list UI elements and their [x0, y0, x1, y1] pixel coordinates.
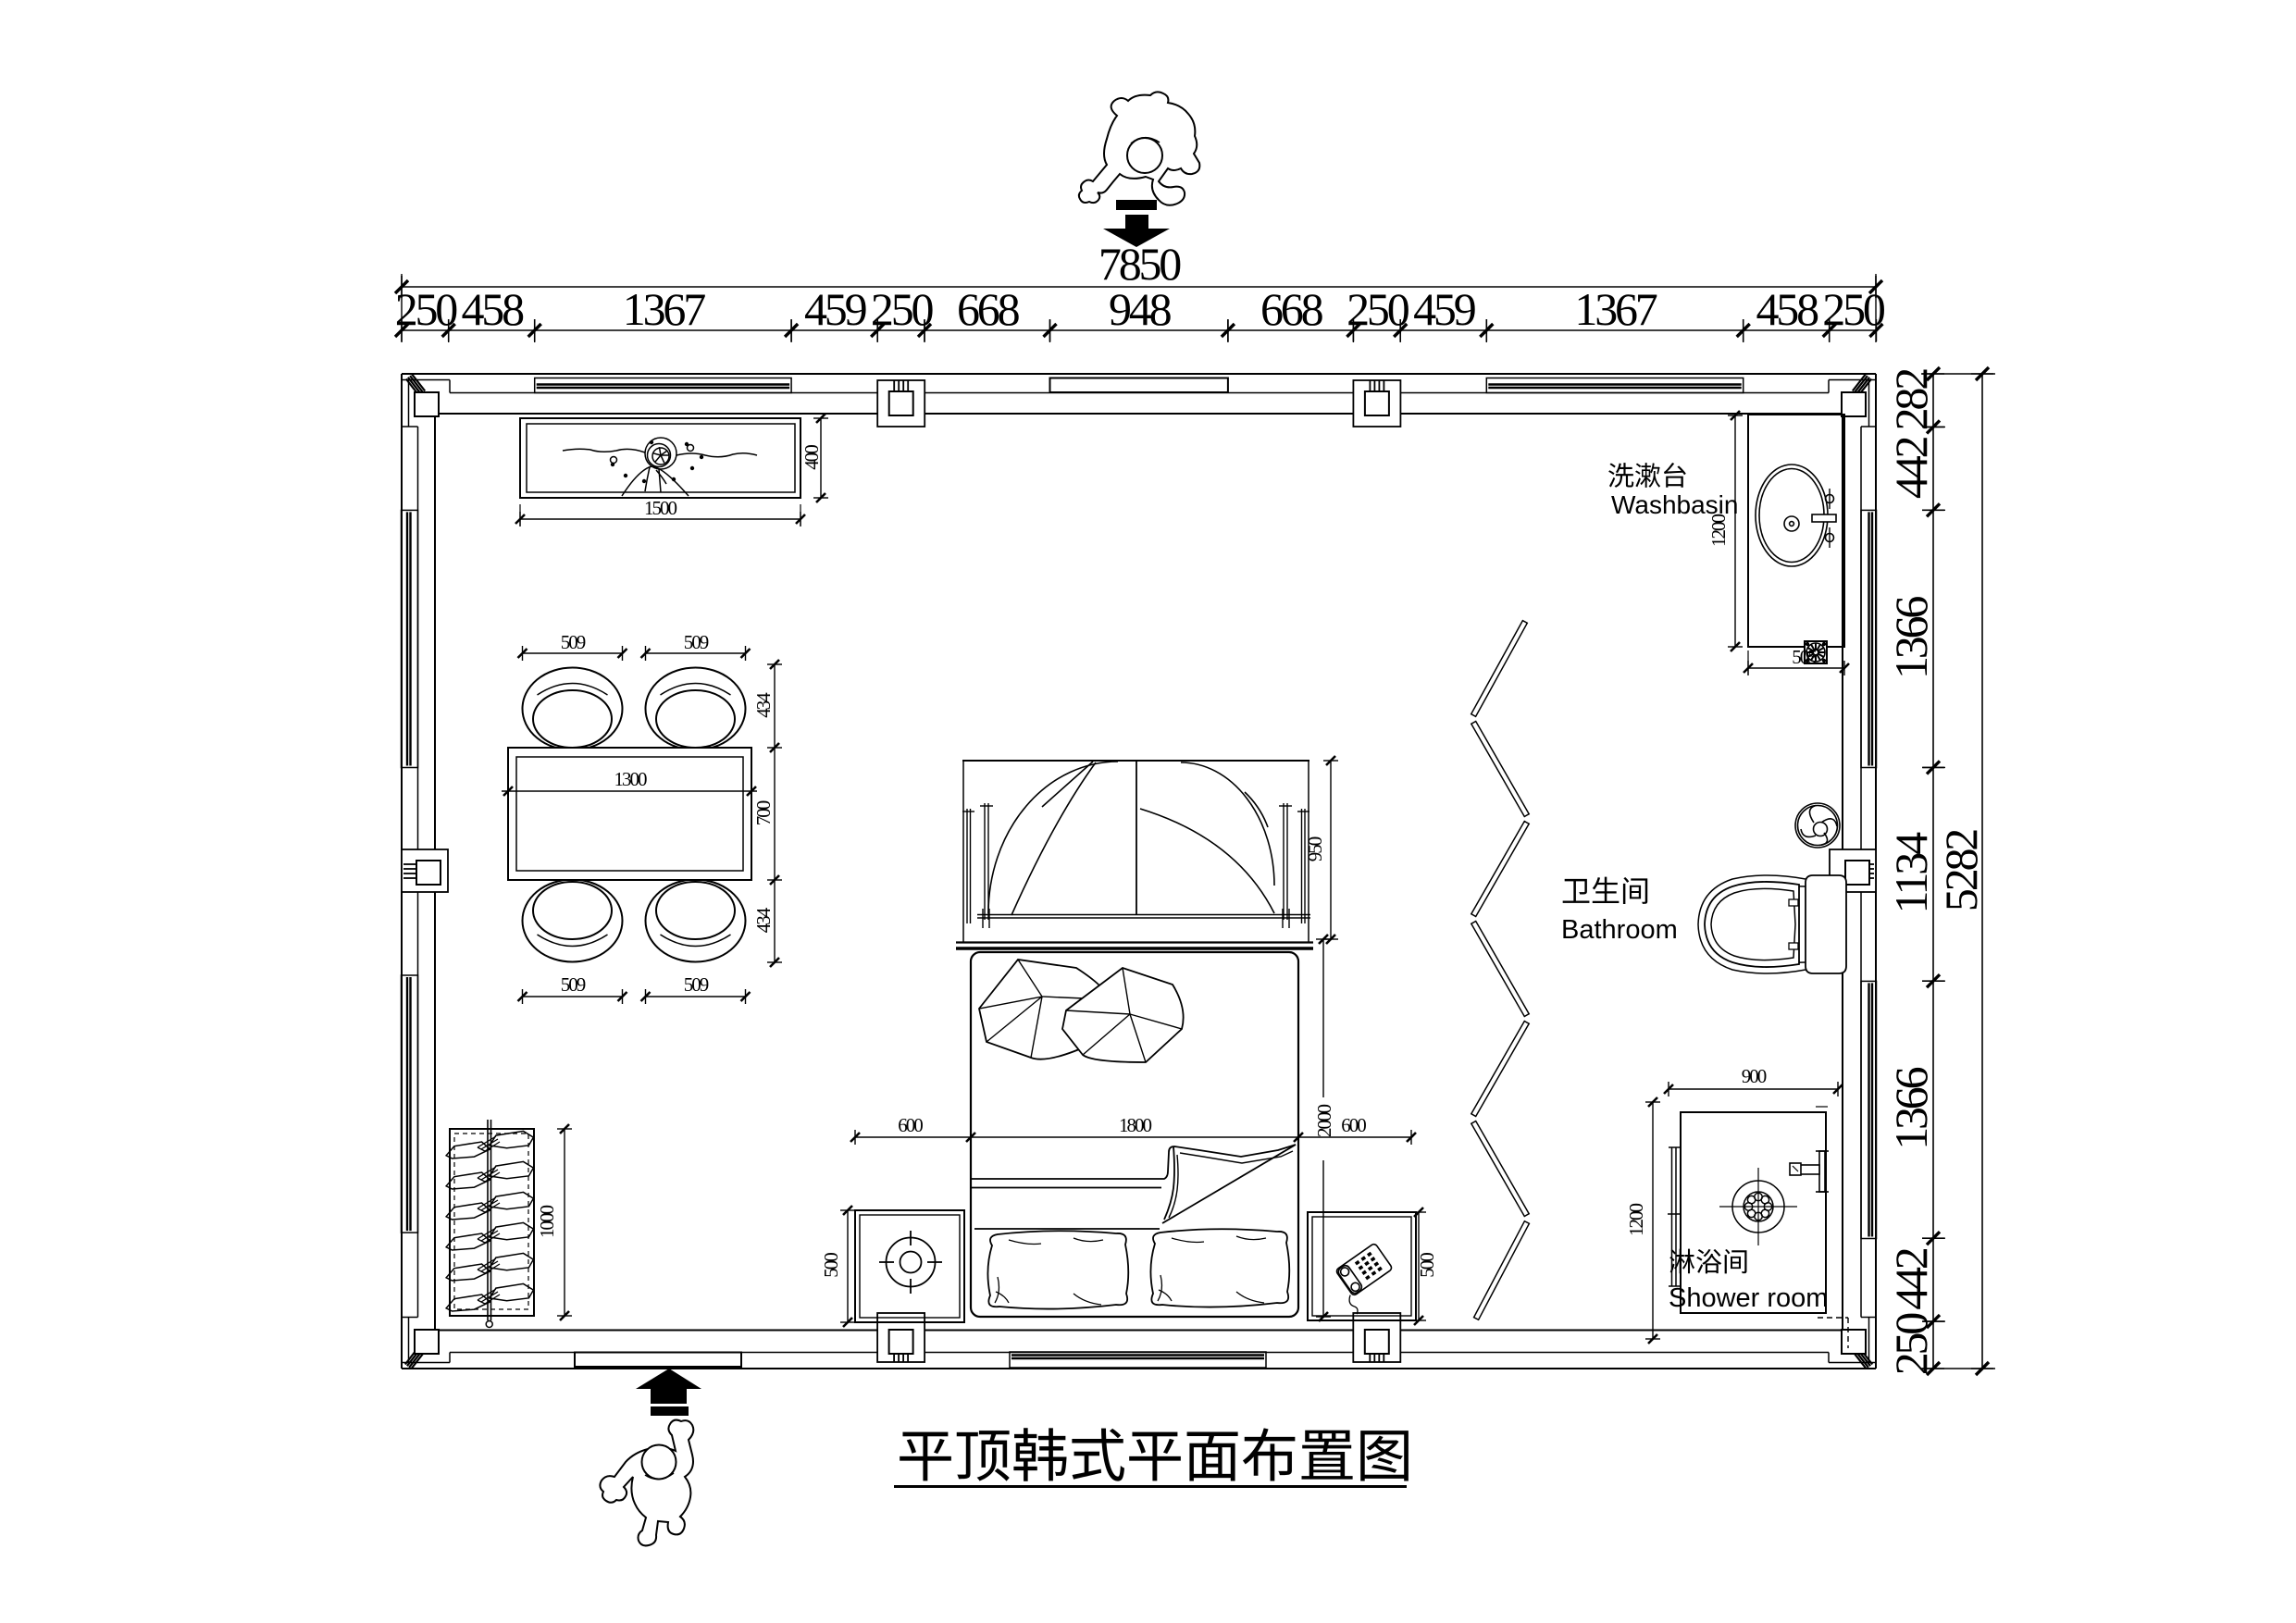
svg-text:509: 509 [561, 973, 586, 996]
svg-text:1500: 1500 [644, 497, 677, 519]
svg-text:7850: 7850 [1098, 238, 1181, 290]
svg-text:600: 600 [1341, 1114, 1366, 1136]
svg-text:458: 458 [461, 283, 524, 335]
svg-text:1800: 1800 [1119, 1114, 1152, 1136]
svg-text:459: 459 [804, 283, 866, 335]
svg-text:459: 459 [1413, 283, 1475, 335]
svg-text:1134: 1134 [1885, 832, 1937, 914]
svg-text:250: 250 [1885, 1313, 1937, 1376]
svg-text:500: 500 [1416, 1253, 1438, 1278]
svg-text:Washbasin: Washbasin [1611, 490, 1738, 519]
svg-text:500: 500 [820, 1253, 842, 1278]
svg-text:1367: 1367 [1574, 283, 1657, 335]
svg-text:250: 250 [1822, 283, 1885, 335]
svg-text:442: 442 [1885, 438, 1937, 500]
svg-text:250: 250 [871, 283, 934, 335]
svg-text:509: 509 [561, 631, 586, 653]
svg-text:458: 458 [1756, 283, 1818, 335]
svg-text:668: 668 [957, 283, 1020, 335]
svg-text:250: 250 [1347, 283, 1409, 335]
svg-text:668: 668 [1260, 283, 1323, 335]
svg-text:1366: 1366 [1885, 597, 1937, 679]
svg-text:400: 400 [800, 445, 823, 470]
svg-text:Bathroom: Bathroom [1561, 915, 1678, 945]
svg-text:282: 282 [1885, 369, 1937, 431]
svg-text:Shower room: Shower room [1669, 1283, 1828, 1313]
svg-text:250: 250 [395, 283, 458, 335]
svg-text:1000: 1000 [536, 1206, 558, 1239]
svg-text:950: 950 [1304, 836, 1326, 861]
svg-text:434: 434 [752, 692, 775, 718]
svg-text:1200: 1200 [1707, 514, 1730, 548]
svg-text:2000: 2000 [1313, 1105, 1335, 1138]
svg-text:900: 900 [1742, 1065, 1767, 1087]
svg-text:1300: 1300 [614, 768, 648, 790]
svg-text:1366: 1366 [1885, 1067, 1937, 1149]
svg-text:505: 505 [1792, 646, 1817, 668]
svg-text:948: 948 [1109, 283, 1172, 335]
svg-text:5282: 5282 [1935, 830, 1987, 911]
svg-text:434: 434 [752, 907, 775, 933]
svg-text:600: 600 [898, 1114, 923, 1136]
svg-text:509: 509 [684, 973, 709, 996]
svg-text:509: 509 [684, 631, 709, 653]
svg-text:700: 700 [752, 800, 775, 825]
svg-text:1367: 1367 [623, 283, 705, 335]
svg-text:1200: 1200 [1625, 1204, 1647, 1237]
svg-text:442: 442 [1885, 1248, 1937, 1310]
